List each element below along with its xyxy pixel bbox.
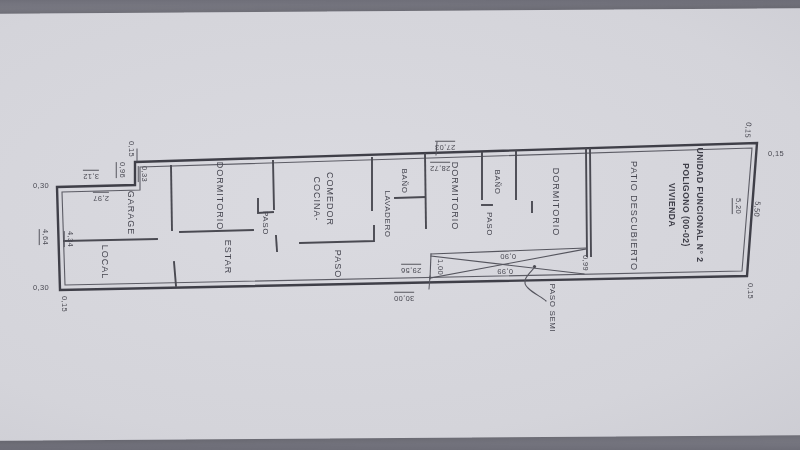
dim-left-inner: 4,34 — [64, 231, 74, 247]
dim-step-offset: 0,15 — [127, 141, 135, 157]
dim-garage-inner: 2,97 — [93, 192, 109, 202]
dim-left-outer: 4,64 — [39, 229, 49, 245]
room-label-estar: ESTAR — [223, 240, 232, 274]
room-label-paso-corridor: PASO — [333, 250, 342, 278]
wall-patio-left-a — [586, 149, 587, 256]
wall-garage-local — [64, 239, 157, 241]
room-label-local: LOCAL — [100, 245, 109, 280]
wall-dorm1-bottom — [180, 230, 253, 232]
title-line-3: VIVIENDA — [668, 183, 677, 227]
dim-strip-099a: 0,99 — [497, 267, 513, 275]
dim-top-right-a: 0,15 — [743, 122, 752, 139]
leader-dot — [533, 265, 536, 268]
wall-cocina-stub — [276, 236, 277, 251]
room-label-cocina-line2: COMEDOR — [325, 172, 334, 226]
dim-left-wall-bottom: 0,30 — [33, 284, 49, 292]
room-label-dormitorio-1: DORMITORIO — [215, 162, 224, 230]
wall-bano1-lavadero — [395, 197, 425, 198]
room-label-patio: PATIO DESCUBIERTO — [629, 161, 638, 271]
dim-bottom-right-offset: 0,15 — [746, 283, 754, 299]
room-label-paso-3: PASO — [485, 212, 493, 236]
wall-patio-left-b — [590, 149, 591, 256]
dim-strip-099b: 0,99 — [581, 255, 589, 271]
floorplan-walls — [0, 0, 800, 450]
wall-dorm2-left — [425, 154, 426, 228]
title-line-1: UNIDAD FUNCIONAL N° 2 — [696, 148, 705, 263]
dimension-ticks — [137, 142, 437, 289]
dim-right-outer: 5,50 — [752, 201, 761, 218]
dim-bottom-2956: 29,56 — [401, 264, 421, 274]
dim-bottom-3000: 30,00 — [394, 292, 414, 302]
photo-of-floorplan: GARAGE LOCAL DORMITORIO ESTAR PASO COCIN… — [0, 0, 800, 450]
dim-top-right-b: 0,15 — [768, 150, 784, 158]
floorplan: GARAGE LOCAL DORMITORIO ESTAR PASO COCIN… — [0, 0, 800, 450]
wall-corridor — [300, 226, 374, 243]
dim-strip-100: 1,00 — [436, 259, 444, 275]
room-label-dormitorio-3: DORMITORIO — [551, 168, 560, 236]
dim-top-2703: 27,03 — [435, 141, 455, 151]
wall-dorm1-left-upper — [171, 166, 172, 230]
room-label-cocina-line1: COCINA- — [312, 177, 321, 222]
room-label-paso-semi: PASO SEMI — [548, 284, 556, 333]
dim-left-wall-top: 0,30 — [33, 182, 49, 190]
dim-garage-outer: 3,12 — [83, 170, 99, 180]
dim-step-033: 0,33 — [138, 166, 148, 182]
dim-bottom-left-offset: 0,15 — [60, 296, 68, 312]
room-label-garage: GARAGE — [126, 191, 135, 236]
strip-left-jamb — [430, 254, 431, 279]
leader-line — [525, 267, 546, 301]
room-label-paso-nook: PASO — [261, 211, 269, 235]
dim-top-2872: 28,72 — [430, 162, 450, 172]
room-label-bano-2: BAÑO — [493, 169, 501, 194]
title-line-2: POLIGONO (00-02) — [682, 163, 691, 247]
room-label-dormitorio-2: DORMITORIO — [450, 162, 459, 230]
dim-right-inner: 5,20 — [732, 198, 742, 214]
room-label-bano-1: BAÑO — [400, 168, 408, 193]
wall-dorm1-right — [273, 161, 274, 209]
dim-strip-090: 0,90 — [500, 252, 516, 260]
room-label-lavadero: LAVADERO — [383, 190, 391, 237]
dim-step-096: 0,96 — [116, 162, 126, 178]
